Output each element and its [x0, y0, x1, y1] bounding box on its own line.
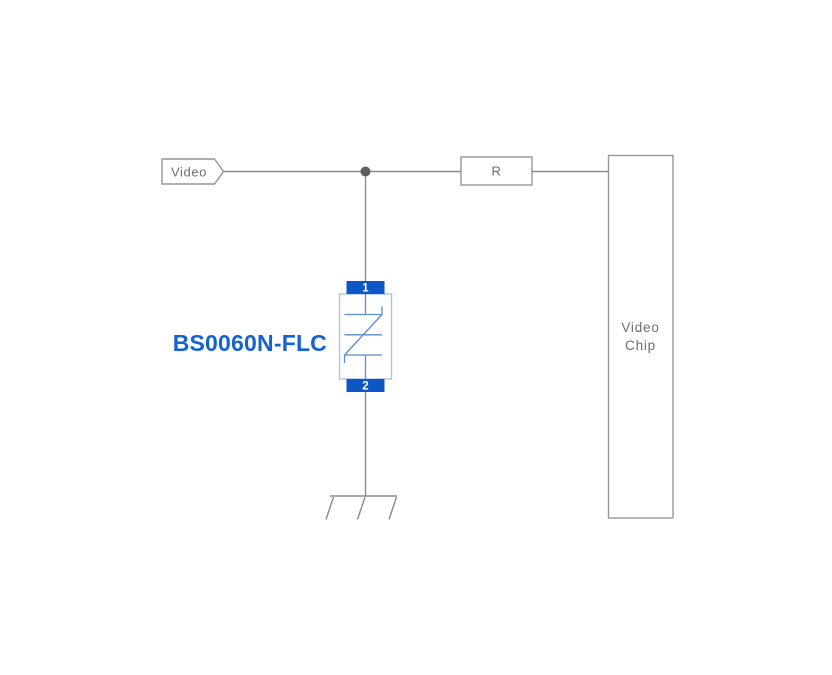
video-net-label: Video: [171, 165, 207, 180]
video-chip-box: [609, 156, 674, 519]
tvs-pin2-label: 2: [362, 381, 368, 393]
component-part-number: BS0060N-FLC: [173, 330, 327, 356]
video-chip-label-line1: Video: [621, 320, 659, 335]
circuit-diagram: Video R Video Chip 1 2: [0, 0, 832, 675]
junction-dot: [361, 167, 371, 177]
resistor-label: R: [492, 164, 502, 179]
video-chip-label-line2: Chip: [625, 338, 656, 353]
ground-symbol-icon: [326, 496, 397, 520]
tvs-pin1-label: 1: [362, 283, 369, 295]
tvs-component: 1 2: [340, 281, 392, 393]
